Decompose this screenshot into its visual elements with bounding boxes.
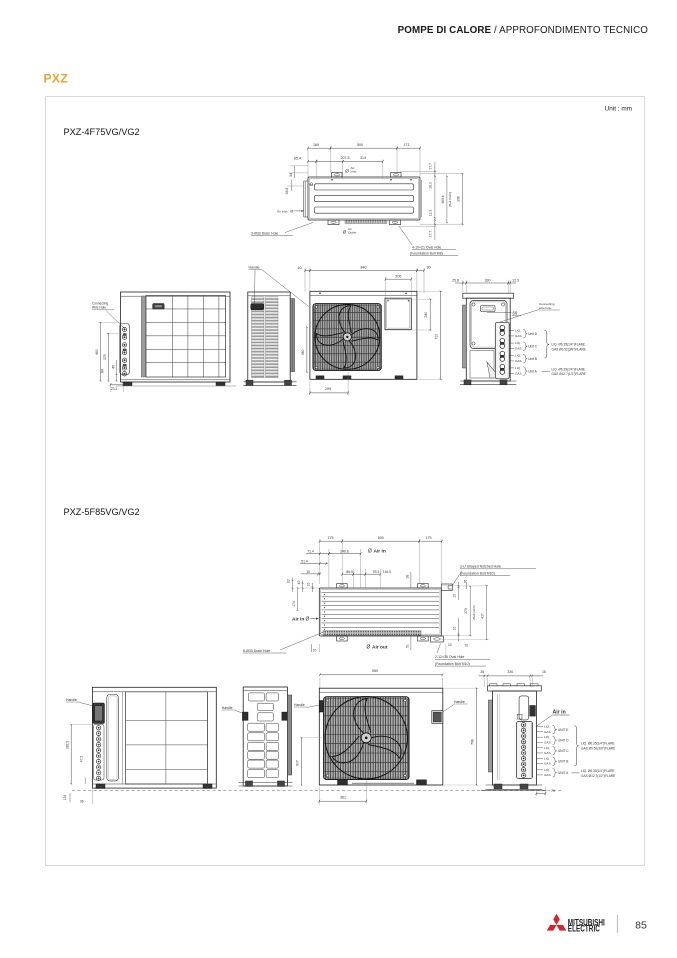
svg-text:36.6: 36.6 <box>285 188 289 195</box>
svg-text:796: 796 <box>470 739 474 745</box>
svg-text:246.6: 246.6 <box>340 550 349 554</box>
svg-text:134: 134 <box>63 795 67 801</box>
svg-text:417: 417 <box>480 613 484 619</box>
svg-text:15: 15 <box>542 670 546 674</box>
svg-text:10: 10 <box>306 570 310 574</box>
svg-text:6-Ø33 Drain Hole: 6-Ø33 Drain Hole <box>243 649 270 653</box>
svg-text:GAS Ø9.52(3/8")FLARE: GAS Ø9.52(3/8")FLARE <box>581 747 615 751</box>
svg-text:ELECTRIC: ELECTRIC <box>568 924 600 934</box>
svg-text:LIQ.: LIQ. <box>544 735 550 739</box>
svg-text:UNIT C: UNIT C <box>558 749 569 753</box>
svg-text:Air Inlet: Air Inlet <box>277 209 288 213</box>
svg-text:10: 10 <box>453 594 457 598</box>
svg-text:330: 330 <box>507 670 513 674</box>
svg-text:GAS: GAS <box>544 730 551 734</box>
svg-text:GAS Ø9.52(3/8")FLARE: GAS Ø9.52(3/8")FLARE <box>552 347 586 351</box>
svg-text:(Bolt pitch): (Bolt pitch) <box>472 605 476 619</box>
svg-text:36: 36 <box>80 800 84 804</box>
svg-text:GAS: GAS <box>544 773 551 777</box>
svg-text:62: 62 <box>287 579 291 583</box>
svg-text:POMPE DI CALORE / APPROFONDI: POMPE DI CALORE / APPROFONDIMENTO TECNIC… <box>398 25 649 36</box>
svg-text:207.5: 207.5 <box>341 156 350 160</box>
svg-text:171: 171 <box>404 143 410 147</box>
svg-text:UNIT D: UNIT D <box>558 739 569 743</box>
svg-text:LIQ.: LIQ. <box>515 366 521 370</box>
svg-text:LIQ.: LIQ. <box>515 329 521 333</box>
svg-text:23.1: 23.1 <box>111 387 118 391</box>
svg-text:71.4: 71.4 <box>307 550 314 554</box>
svg-text:370: 370 <box>464 608 468 614</box>
svg-text:LIQ. Ø6.35(1/4")FLARE: LIQ. Ø6.35(1/4")FLARE <box>552 343 586 347</box>
svg-text:LIQ.: LIQ. <box>544 746 550 750</box>
svg-text:51: 51 <box>405 644 409 648</box>
svg-text:Ø: Ø <box>367 645 371 651</box>
svg-text:86.5: 86.5 <box>346 570 353 574</box>
svg-text:(Foundation Bolt M10): (Foundation Bolt M10) <box>460 571 495 575</box>
svg-text:25: 25 <box>480 670 484 674</box>
svg-text:10: 10 <box>453 627 457 631</box>
svg-text:(Foundation Bolt M10): (Foundation Bolt M10) <box>435 662 470 666</box>
svg-text:12.3: 12.3 <box>429 210 433 217</box>
svg-text:10: 10 <box>448 643 452 647</box>
svg-text:375: 375 <box>103 354 107 360</box>
svg-text:174: 174 <box>292 601 296 607</box>
svg-text:Air in: Air in <box>374 549 386 555</box>
svg-text:Wire Hole: Wire Hole <box>92 306 106 310</box>
svg-text:Unit B: Unit B <box>528 357 537 361</box>
svg-text:Outlet: Outlet <box>348 231 356 235</box>
svg-text:Handle: Handle <box>222 706 233 710</box>
svg-text:93.3: 93.3 <box>373 570 380 574</box>
svg-text:PXZ: PXZ <box>44 72 69 86</box>
svg-text:18.3: 18.3 <box>429 182 433 189</box>
svg-text:GAS Ø12.7(1/2")FLARE: GAS Ø12.7(1/2")FLARE <box>581 774 615 778</box>
svg-text:66: 66 <box>513 311 518 316</box>
svg-text:Handle: Handle <box>454 700 465 704</box>
svg-text:LIQ.: LIQ. <box>544 768 550 772</box>
svg-text:GAS: GAS <box>515 334 522 338</box>
svg-text:Unit D: Unit D <box>528 332 538 336</box>
svg-text:34: 34 <box>289 173 293 177</box>
svg-text:LIQ. Ø6.35(1/4")FLARE: LIQ. Ø6.35(1/4")FLARE <box>552 367 586 371</box>
svg-text:12.3: 12.3 <box>512 278 519 282</box>
svg-text:UNIT B: UNIT B <box>558 760 568 764</box>
svg-text:LIQ. Ø6.35(1/4")FLARE: LIQ. Ø6.35(1/4")FLARE <box>581 769 615 773</box>
svg-text:330: 330 <box>485 278 491 282</box>
svg-text:LIQ.: LIQ. <box>544 725 550 729</box>
svg-text:Air in: Air in <box>292 616 304 622</box>
svg-text:GAS: GAS <box>515 371 522 375</box>
svg-text:(Bolt Pitch): (Bolt Pitch) <box>448 192 452 207</box>
svg-text:360: 360 <box>301 349 305 355</box>
svg-text:314: 314 <box>360 156 366 160</box>
svg-text:Ø: Ø <box>306 617 310 623</box>
svg-text:10: 10 <box>313 649 317 653</box>
svg-text:PXZ-4F75VG/VG2: PXZ-4F75VG/VG2 <box>64 127 140 137</box>
svg-text:2-U Shaped Notched Hole: 2-U Shaped Notched Hole <box>460 565 501 569</box>
svg-text:360.6: 360.6 <box>441 195 445 203</box>
svg-text:31: 31 <box>464 643 468 647</box>
svg-text:Handle: Handle <box>294 703 305 707</box>
svg-text:175: 175 <box>328 536 334 540</box>
svg-text:40: 40 <box>297 581 301 585</box>
svg-text:3-Ø33 Drain Hole: 3-Ø33 Drain Hole <box>251 231 278 235</box>
svg-text:47.5: 47.5 <box>80 756 84 763</box>
svg-text:Ø: Ø <box>343 229 347 234</box>
svg-text:240: 240 <box>424 312 428 318</box>
svg-text:UNIT A: UNIT A <box>558 771 569 775</box>
svg-text:LIQ.: LIQ. <box>544 756 550 760</box>
svg-text:710: 710 <box>434 334 438 340</box>
svg-text:175: 175 <box>426 536 432 540</box>
svg-text:382.5: 382.5 <box>65 741 69 749</box>
svg-text:45: 45 <box>111 365 115 369</box>
svg-text:(Foundation Bolt M8): (Foundation Bolt M8) <box>410 251 443 255</box>
svg-text:Inlet: Inlet <box>351 170 357 174</box>
svg-text:Air out: Air out <box>372 645 388 651</box>
svg-text:600: 600 <box>378 536 384 540</box>
svg-text:10: 10 <box>307 583 311 587</box>
svg-text:Handle: Handle <box>66 698 77 702</box>
svg-text:840: 840 <box>361 265 367 269</box>
svg-text:LIQ.: LIQ. <box>515 341 521 345</box>
svg-text:Handle: Handle <box>249 265 260 269</box>
svg-text:460: 460 <box>95 349 99 355</box>
svg-text:Ø: Ø <box>290 209 293 214</box>
svg-text:2-12×36 Oval Hole: 2-12×36 Oval Hole <box>435 655 464 659</box>
svg-text:17.7: 17.7 <box>429 163 433 170</box>
svg-text:200: 200 <box>395 275 401 279</box>
svg-text:70: 70 <box>551 789 555 793</box>
svg-text:36: 36 <box>463 580 467 584</box>
svg-text:396: 396 <box>456 196 460 202</box>
svg-text:GAS: GAS <box>544 751 551 755</box>
svg-text:GAS: GAS <box>515 347 522 351</box>
svg-text:PXZ-5F85VG/VG2: PXZ-5F85VG/VG2 <box>64 507 140 517</box>
svg-text:38: 38 <box>405 575 409 579</box>
svg-text:4-10×21 Oval Hole: 4-10×21 Oval Hole <box>412 245 441 249</box>
svg-text:Unit C: Unit C <box>528 345 538 349</box>
svg-text:GAS: GAS <box>544 762 551 766</box>
svg-text:950: 950 <box>372 669 378 673</box>
svg-text:361: 361 <box>340 795 346 799</box>
svg-text:84: 84 <box>101 369 105 373</box>
svg-text:169: 169 <box>313 143 319 147</box>
svg-text:299: 299 <box>325 387 331 391</box>
svg-text:Ø: Ø <box>345 168 349 173</box>
svg-text:wire hole: wire hole <box>539 306 552 310</box>
svg-text:10: 10 <box>298 266 302 270</box>
svg-text:Unit : mm: Unit : mm <box>605 106 632 113</box>
svg-text:GAS Ø12.7(1/2")FLARE: GAS Ø12.7(1/2")FLARE <box>552 372 586 376</box>
svg-text:17.7: 17.7 <box>429 231 433 238</box>
svg-text:LIQ. Ø6.35(1/4")FLARE: LIQ. Ø6.35(1/4")FLARE <box>581 742 615 746</box>
svg-text:LIQ.: LIQ. <box>515 354 521 358</box>
svg-text:Unit A: Unit A <box>528 369 537 373</box>
svg-text:25.8: 25.8 <box>452 278 459 282</box>
svg-text:65.4: 65.4 <box>294 156 301 160</box>
svg-text:51.4: 51.4 <box>301 559 308 563</box>
svg-text:30: 30 <box>427 265 431 269</box>
svg-text:Air in: Air in <box>553 710 566 716</box>
svg-text:607: 607 <box>295 760 299 766</box>
svg-text:116.5: 116.5 <box>383 570 391 574</box>
svg-text:85: 85 <box>635 920 647 932</box>
svg-text:Ø: Ø <box>368 549 372 555</box>
svg-text:GAS: GAS <box>544 740 551 744</box>
svg-text:GAS: GAS <box>515 359 522 363</box>
svg-text:500: 500 <box>357 143 363 147</box>
svg-text:UNIT E: UNIT E <box>558 728 568 732</box>
